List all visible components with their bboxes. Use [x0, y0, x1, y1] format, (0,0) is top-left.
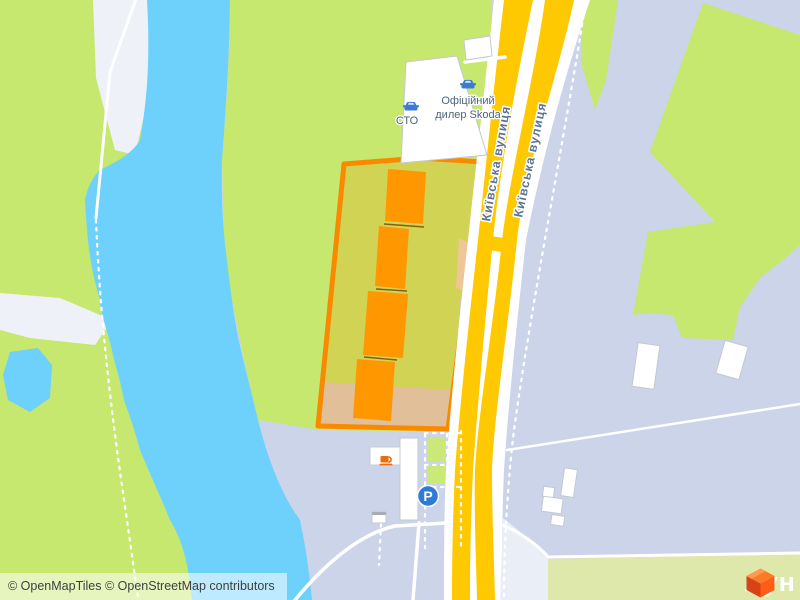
sto-label[interactable]: СТО	[396, 115, 419, 127]
map-canvas[interactable]: P СТО Офіційний дилер Skoda Київська вул…	[0, 0, 800, 600]
road-crossover	[489, 236, 504, 252]
kiosk-building	[372, 512, 386, 523]
attribution[interactable]: © OpenMapTiles © OpenStreetMap contribut…	[0, 573, 287, 600]
cluster-building-c	[551, 515, 565, 527]
site-building-4	[353, 359, 395, 421]
gas-lawn-2	[427, 466, 445, 484]
parking-icon[interactable]: P	[418, 486, 439, 507]
parking-icon-letter: P	[423, 488, 432, 504]
site-building-1	[385, 169, 426, 224]
coffee-icon[interactable]	[380, 456, 393, 465]
lun-cube-icon	[745, 567, 776, 598]
dealer-label-line1[interactable]: Офіційний	[441, 95, 494, 107]
gas-lawn-1	[427, 438, 445, 462]
site-building-3	[363, 291, 408, 358]
lun-logo: лун	[745, 567, 796, 597]
skoda-dealer-annex	[464, 36, 492, 60]
dealer-label-line2[interactable]: дилер Skoda	[435, 109, 501, 121]
site-building-2	[375, 226, 409, 289]
gas-station-building	[400, 438, 418, 520]
cluster-building-b	[541, 496, 563, 514]
